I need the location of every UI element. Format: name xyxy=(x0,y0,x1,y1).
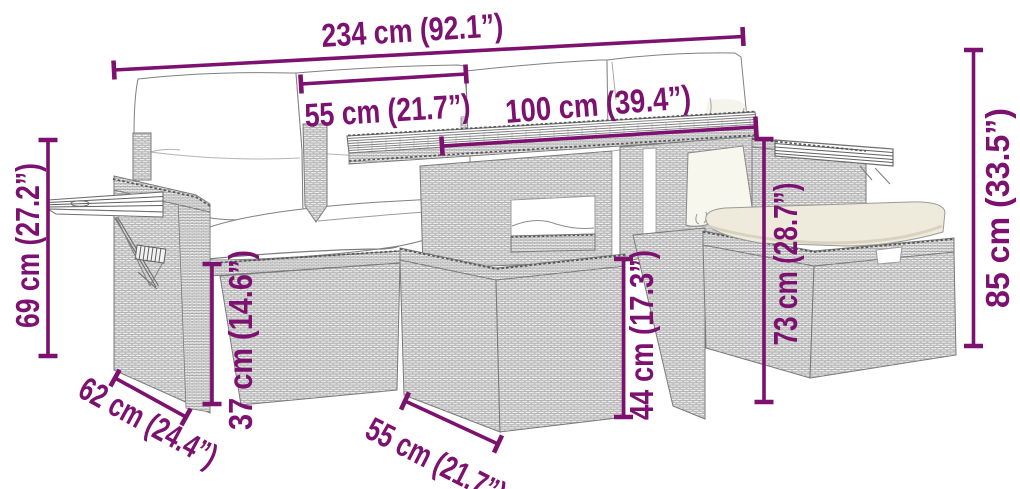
svg-text:85 cm (33.5”): 85 cm (33.5”) xyxy=(979,108,1016,308)
svg-text:37 cm (14.6”): 37 cm (14.6”) xyxy=(222,250,259,430)
svg-text:44 cm (17.3”): 44 cm (17.3”) xyxy=(623,250,660,420)
svg-text:69 cm (27.2”): 69 cm (27.2”) xyxy=(9,163,46,328)
svg-text:73 cm (28.7”): 73 cm (28.7”) xyxy=(767,183,804,346)
